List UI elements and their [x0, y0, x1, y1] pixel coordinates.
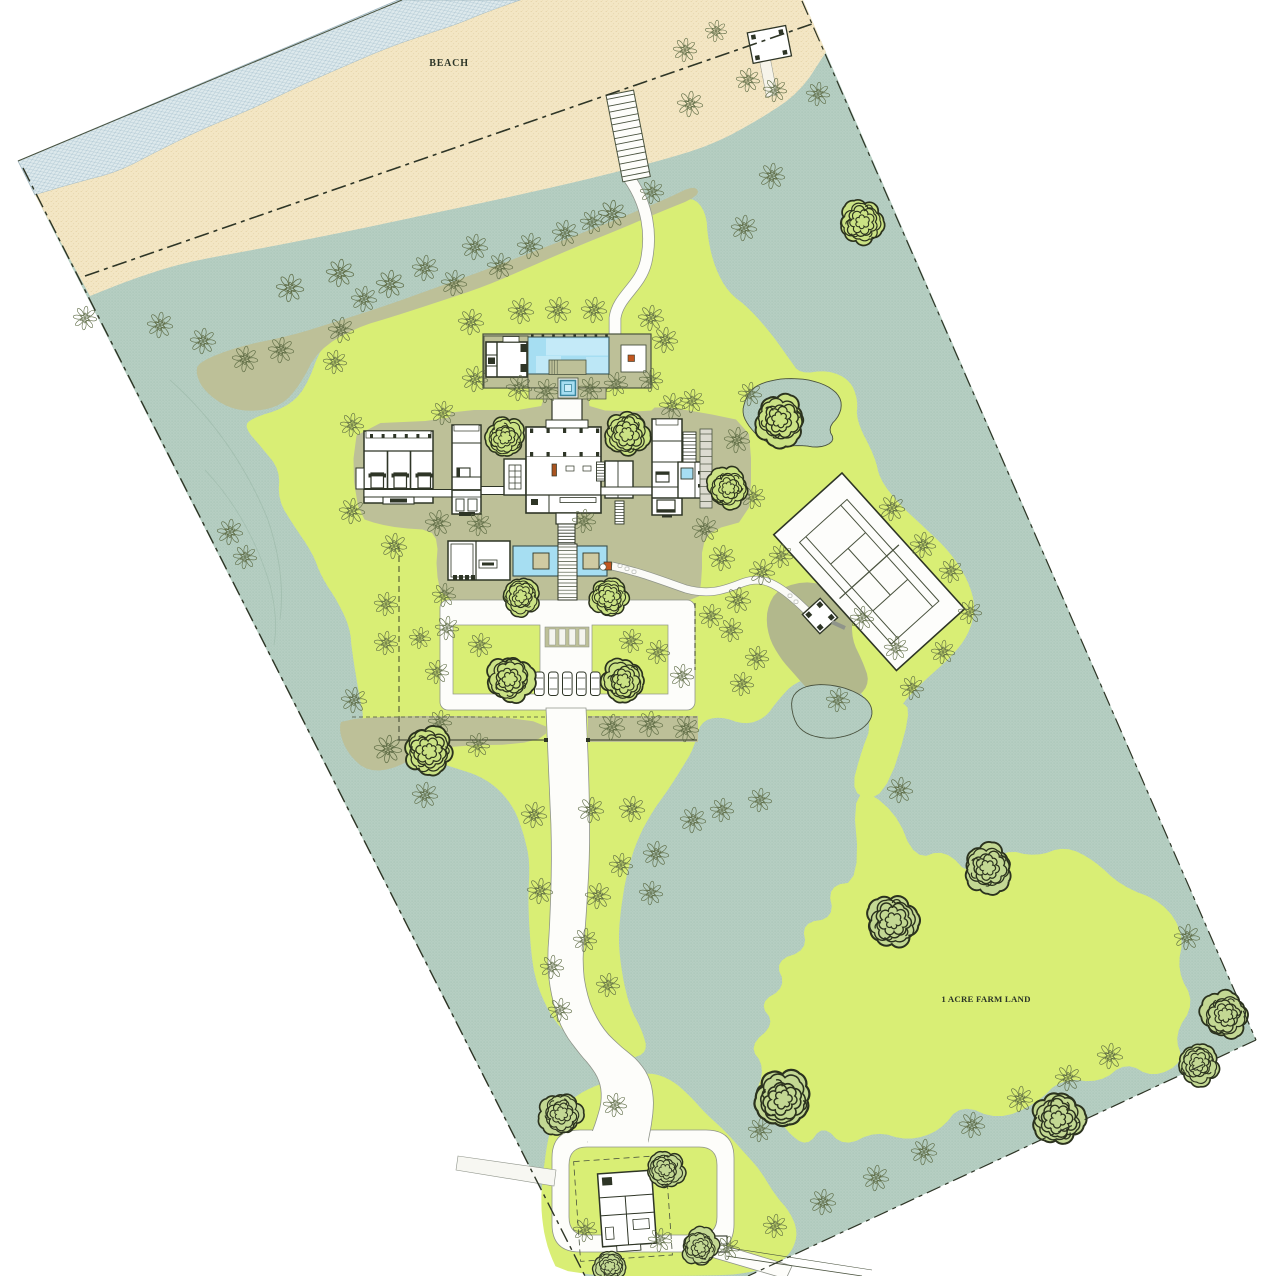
svg-text:BEACH: BEACH [429, 58, 469, 69]
svg-text:1 ACRE FARM LAND: 1 ACRE FARM LAND [941, 994, 1030, 1004]
